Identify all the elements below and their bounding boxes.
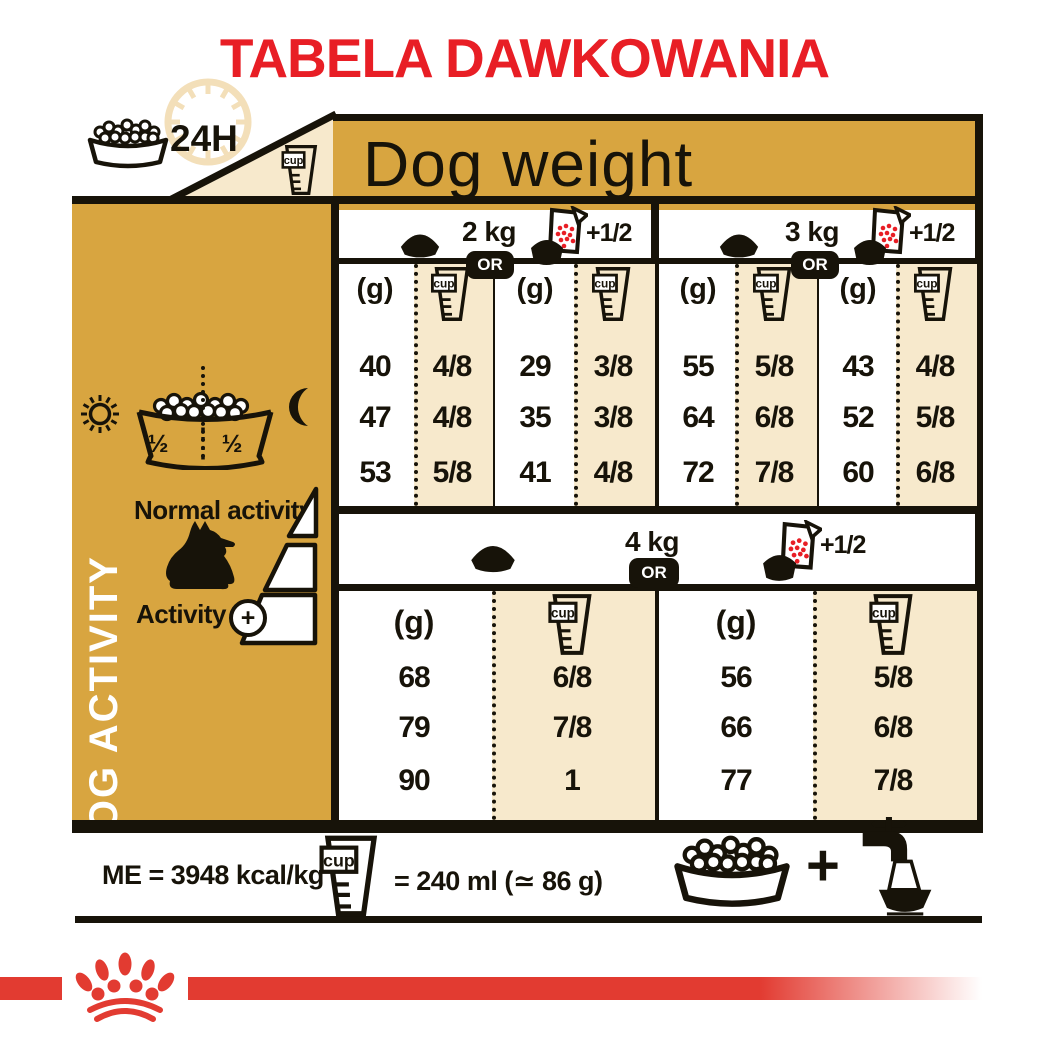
- grams-value: 66: [694, 711, 778, 745]
- cup-fraction-value: 3/8: [571, 350, 655, 384]
- grams-value: 41: [493, 456, 577, 490]
- cup-fraction-value: 5/8: [893, 401, 977, 435]
- cup-fraction-value: 5/8: [851, 661, 935, 695]
- brand-stripe: [0, 977, 62, 1000]
- kibble-bowl-icon: [84, 116, 172, 176]
- bowl-split-dotted-line: [201, 366, 205, 458]
- cup-icon-label: cup: [872, 605, 896, 620]
- cup-fraction-value: 6/8: [893, 456, 977, 490]
- cup-icon: cup: [752, 266, 796, 322]
- grams-unit-label: (g): [333, 273, 417, 306]
- plus-half-label: +1/2: [586, 219, 631, 248]
- cup-equivalence-label: = 240 ml (≃ 86 g): [394, 866, 602, 897]
- cup-icon: cup: [280, 144, 322, 196]
- kibble-sachet-icon: [762, 520, 822, 584]
- cup-fraction-value: 6/8: [851, 711, 935, 745]
- or-label: OR: [802, 255, 828, 275]
- grams-value: 56: [694, 661, 778, 695]
- cup-icon-label: cup: [284, 155, 304, 167]
- brand-stripe: [188, 977, 982, 1000]
- grams-unit-label: (g): [694, 604, 778, 641]
- water-tap-icon: [844, 817, 944, 920]
- or-label: OR: [477, 255, 503, 275]
- dog-weight-label: Dog weight: [363, 127, 693, 201]
- cup-fraction-value: 3/8: [571, 401, 655, 435]
- cup-icon: cup: [913, 266, 957, 322]
- grams-value: 72: [656, 456, 740, 490]
- half-half-bowl-icon: [131, 392, 279, 470]
- bowl-icon: [398, 230, 442, 260]
- cup-fraction-value: 4/8: [893, 350, 977, 384]
- sun-icon: [80, 388, 124, 436]
- or-label: OR: [641, 563, 667, 583]
- section-bottom-line: [331, 506, 983, 514]
- cup-fraction-value: 5/8: [410, 456, 494, 490]
- kibble-sachet-icon: [530, 206, 588, 268]
- grams-value: 64: [656, 401, 740, 435]
- me-kcal-label: ME = 3948 kcal/kg: [102, 860, 324, 891]
- or-badge: OR: [466, 251, 514, 279]
- grams-value: 60: [816, 456, 900, 490]
- cup-icon-label: cup: [916, 277, 937, 291]
- grams-value: 77: [694, 764, 778, 798]
- bowl-icon: [468, 541, 518, 575]
- grams-value: 35: [493, 401, 577, 435]
- cup-fraction-value: 1: [530, 764, 614, 798]
- cup-icon: cup: [547, 593, 597, 656]
- grams-unit-label: (g): [656, 273, 740, 306]
- cup-fraction-value: 4/8: [571, 456, 655, 490]
- plus-half-label: +1/2: [820, 531, 865, 560]
- grams-value: 47: [333, 401, 417, 435]
- weight-4kg-label: 4 kg: [625, 526, 679, 558]
- cup-fraction-value: 6/8: [732, 401, 816, 435]
- cup-icon-label: cup: [433, 277, 454, 291]
- bowl-icon: [717, 230, 761, 260]
- weight-3kg-label: 3 kg: [785, 216, 839, 248]
- or-badge: OR: [791, 251, 839, 279]
- cup-fraction-value: 5/8: [732, 350, 816, 384]
- cup-fraction-value: 4/8: [410, 350, 494, 384]
- cup-icon-label: cup: [323, 851, 355, 871]
- cup-icon-label: cup: [755, 277, 776, 291]
- grams-unit-label: (g): [372, 604, 456, 641]
- or-badge: OR: [629, 558, 679, 588]
- grams-value: 90: [372, 764, 456, 798]
- dog-activity-vertical-label: DOG ACTIVITY: [82, 480, 127, 862]
- grams-value: 29: [493, 350, 577, 384]
- plus-half-label: +1/2: [909, 219, 954, 248]
- grams-value: 43: [816, 350, 900, 384]
- grams-value: 52: [816, 401, 900, 435]
- grams-value: 55: [656, 350, 740, 384]
- cup-icon: cup: [316, 834, 386, 918]
- cup-icon: cup: [591, 266, 635, 322]
- cup-fraction-value: 7/8: [851, 764, 935, 798]
- activity-plus-label: +: [241, 606, 256, 631]
- grams-value: 40: [333, 350, 417, 384]
- kibble-bowl-icon: [652, 832, 812, 918]
- cup-icon-label: cup: [594, 277, 615, 291]
- cup-fraction-value: 7/8: [732, 456, 816, 490]
- plus-circle-icon: +: [229, 599, 267, 637]
- grams-value: 68: [372, 661, 456, 695]
- cup-fraction-value: 4/8: [410, 401, 494, 435]
- royal-canin-crown-logo: [70, 950, 188, 1024]
- grams-value: 53: [333, 456, 417, 490]
- cup-icon: cup: [868, 593, 918, 656]
- grams-value: 79: [372, 711, 456, 745]
- moon-icon: [282, 386, 312, 428]
- weight-2kg-label: 2 kg: [462, 216, 516, 248]
- clock-24h-label: 24H: [170, 118, 238, 160]
- activity-label: Activity: [136, 599, 226, 630]
- cup-fraction-value: 7/8: [530, 711, 614, 745]
- header-divider-line: [72, 196, 983, 204]
- cup-fraction-value: 6/8: [530, 661, 614, 695]
- cup-icon-label: cup: [551, 605, 575, 620]
- kibble-sachet-icon: [853, 206, 911, 268]
